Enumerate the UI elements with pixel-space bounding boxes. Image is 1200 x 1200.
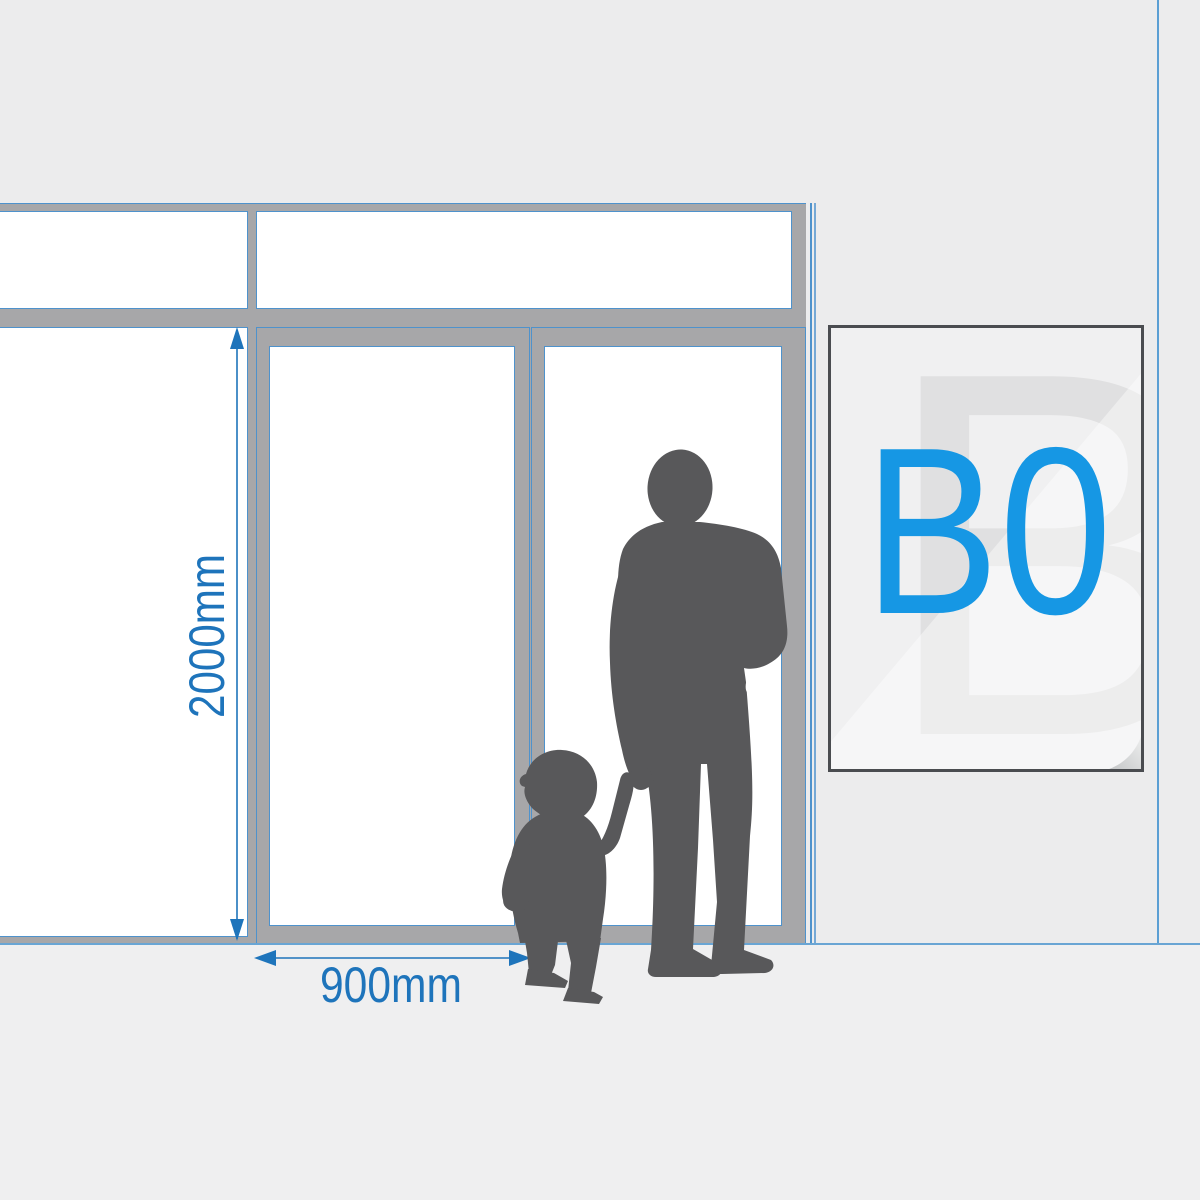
door-leaf-left	[256, 327, 530, 944]
poster-frame-b0: B B0	[828, 325, 1144, 772]
facade-corner-line-inner	[814, 203, 816, 943]
facade-corner-line-outer	[810, 203, 812, 943]
sidelight-window	[0, 327, 248, 937]
storefront-frame	[0, 203, 806, 943]
door-glass-right	[544, 346, 782, 926]
wall-edge-line	[1157, 0, 1159, 943]
transom-window-right	[256, 211, 792, 309]
scene: B B0 2000mm 900mm	[0, 0, 1200, 1200]
floor-line	[0, 943, 1200, 945]
door-leaf-right	[531, 327, 806, 944]
transom-window-left	[0, 211, 248, 309]
door-glass-left	[269, 346, 515, 926]
poster-size-label: B0	[864, 399, 1112, 664]
floor	[0, 945, 1200, 1200]
